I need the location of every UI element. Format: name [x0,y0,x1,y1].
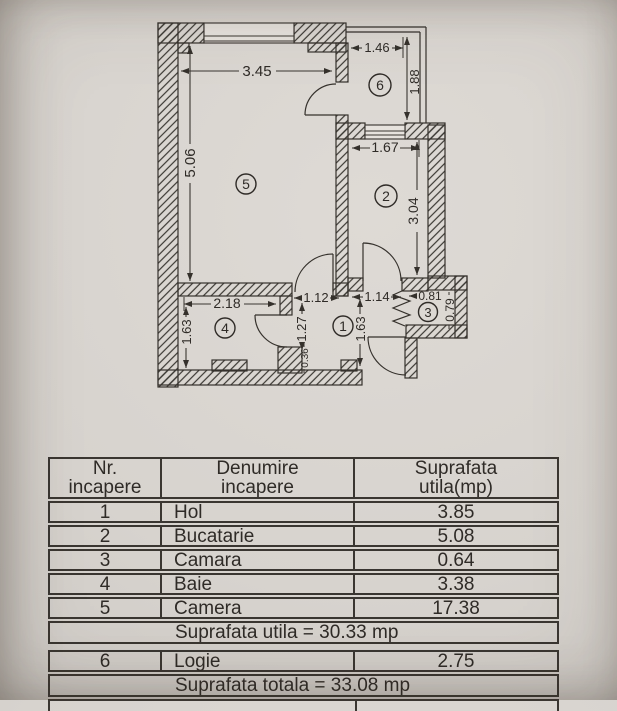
cell-name: Baie [160,575,353,593]
header-suprafata: Suprafata utila(mp) [353,459,557,497]
area-table: Nr. incapere Denumire incapere Suprafata… [48,457,559,711]
cell-name: Hol [160,503,353,521]
door-living-hall [295,254,333,292]
cell-nr: 2 [50,527,160,545]
dim-bath-height: 1.63 [179,319,194,344]
room-number: 1 [339,318,347,334]
cell-area: 3.38 [353,575,557,593]
wall-segment [280,296,292,315]
room-number: 5 [242,176,250,192]
wall-segment [341,360,357,371]
header-text: incapere [221,478,294,497]
dim-kitchen-width: 1.67 [371,139,398,155]
cell-name: Logie [160,652,353,670]
cell-name: Camera [160,599,353,617]
wall-segment [336,123,365,139]
wall-segment [428,125,445,278]
room-label-living: 5 [236,174,256,194]
cell-nr: 3 [50,551,160,569]
cell-area: 5.08 [353,527,557,545]
table-row: 5 Camera 17.38 [48,597,559,619]
dim-balcony-width: 1.46 [364,40,389,55]
door-living-balcony [305,84,336,115]
dim-pantry-height: 0.79 [443,298,457,322]
room-number: 3 [424,305,431,320]
room-label-pantry: 3 [419,303,438,322]
summary-utila: Suprafata utila = 30.33 mp [48,621,559,644]
cell-nr: 5 [50,599,160,617]
room-label-kitchen: 2 [375,185,397,207]
wall-segment [178,43,189,53]
header-text: incapere [69,478,142,497]
summary-totala: Suprafata totala = 33.08 mp [48,674,559,697]
window [365,125,405,139]
cell-area: 2.75 [353,652,557,670]
cell-area: 17.38 [353,599,557,617]
cell-nr: 6 [50,652,160,670]
header-text: Denumire [216,459,298,478]
cell-area: 3.85 [353,503,557,521]
cell-area: 0.64 [353,551,557,569]
header-text: utila(mp) [419,478,493,497]
table-row: 1 Hol 3.85 [48,501,559,523]
wall-segment [348,278,363,291]
wall-segment [405,338,417,378]
wall-segment [158,23,178,387]
wall-segment [336,115,348,296]
table-row-logie: 6 Logie 2.75 [48,650,559,672]
dim-hall-left-width: 1.12 [303,290,328,305]
dim-bath-width: 2.18 [213,295,240,311]
folding-door-pantry [393,290,410,326]
wall-segment [212,360,247,371]
header-nr: Nr. incapere [50,459,160,497]
dim-balcony-height: 1.88 [407,69,422,94]
room-number: 6 [376,77,384,93]
dim-hall-stub: 0.36 [300,348,311,368]
table-row: 3 Camara 0.64 [48,549,559,571]
floor-plan: 3.45 5.06 1.46 1.88 1.67 3.04 [0,0,617,452]
wall-segment [406,325,467,338]
wall-segment [336,43,348,82]
wall-segment [294,23,346,43]
wall-segment [278,347,302,373]
room-number: 4 [221,320,229,336]
table-header-row: Nr. incapere Denumire incapere Suprafata… [48,457,559,499]
room-number: 2 [382,188,390,204]
table-row-partial [48,699,559,711]
table-row: 2 Bucatarie 5.08 [48,525,559,547]
header-text: Nr. [93,459,117,478]
cell-name: Camara [160,551,353,569]
dim-hall-left-height: 1.27 [294,316,309,341]
table-row: 4 Baie 3.38 [48,573,559,595]
dim-living-height: 5.06 [182,148,199,177]
scanned-page: 3.45 5.06 1.46 1.88 1.67 3.04 [0,0,617,700]
wall-segment [405,123,445,139]
cell-nr: 1 [50,503,160,521]
dim-living-width: 3.45 [242,63,271,80]
room-label-bath: 4 [215,318,235,338]
cell-nr: 4 [50,575,160,593]
room-label-balcony: 6 [369,74,391,96]
room-label-hall: 1 [333,316,353,336]
dim-pantry-width: 0.81 [418,289,442,303]
dim-kitchen-height: 3.04 [405,197,421,224]
wall-segment [158,370,362,385]
door-entrance [368,337,406,375]
dim-hall-right-width: 1.14 [364,289,389,304]
wall-segment [333,283,348,296]
header-text: Suprafata [415,459,497,478]
window [204,23,294,43]
dim-hall-right-height: 1.63 [353,316,368,341]
cell-name: Bucatarie [160,527,353,545]
header-denumire: Denumire incapere [160,459,353,497]
door-bath [255,315,287,347]
door-kitchen [363,243,401,281]
